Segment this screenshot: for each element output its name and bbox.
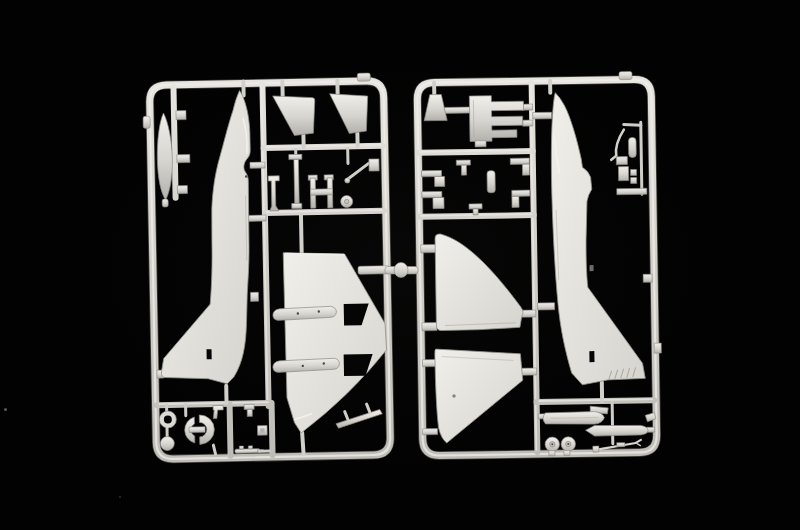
sprue-photo (0, 0, 800, 530)
frame-a-top-bump (357, 73, 370, 81)
dust-speck-1 (4, 408, 7, 411)
tank-stub (162, 199, 168, 207)
arm-joint (345, 178, 350, 183)
frame-b-top-bump (619, 71, 632, 79)
tailplane-tab (250, 292, 258, 301)
drop-tank-half-b (585, 425, 648, 436)
dust-speck-2 (452, 394, 455, 397)
cockpit-bar (487, 171, 495, 193)
rail-nub-b (654, 343, 661, 353)
dust-speck-3 (119, 496, 121, 498)
tail-bullet (628, 137, 636, 157)
tailplane-slot-b (589, 351, 594, 362)
photo-stage (0, 0, 800, 530)
actuator-block (369, 159, 379, 171)
fuselage-vent (589, 265, 593, 271)
frame-a-side-tab (143, 116, 150, 128)
hook-bracket-b (618, 167, 628, 181)
rail-nub-a (643, 274, 652, 282)
small-wheel-hub (344, 199, 348, 203)
hook-bracket-a (616, 157, 627, 165)
intake-bar (189, 427, 205, 433)
tailplane-slot (207, 349, 212, 359)
hatch-recess (260, 428, 265, 433)
hub-disc (160, 436, 174, 450)
